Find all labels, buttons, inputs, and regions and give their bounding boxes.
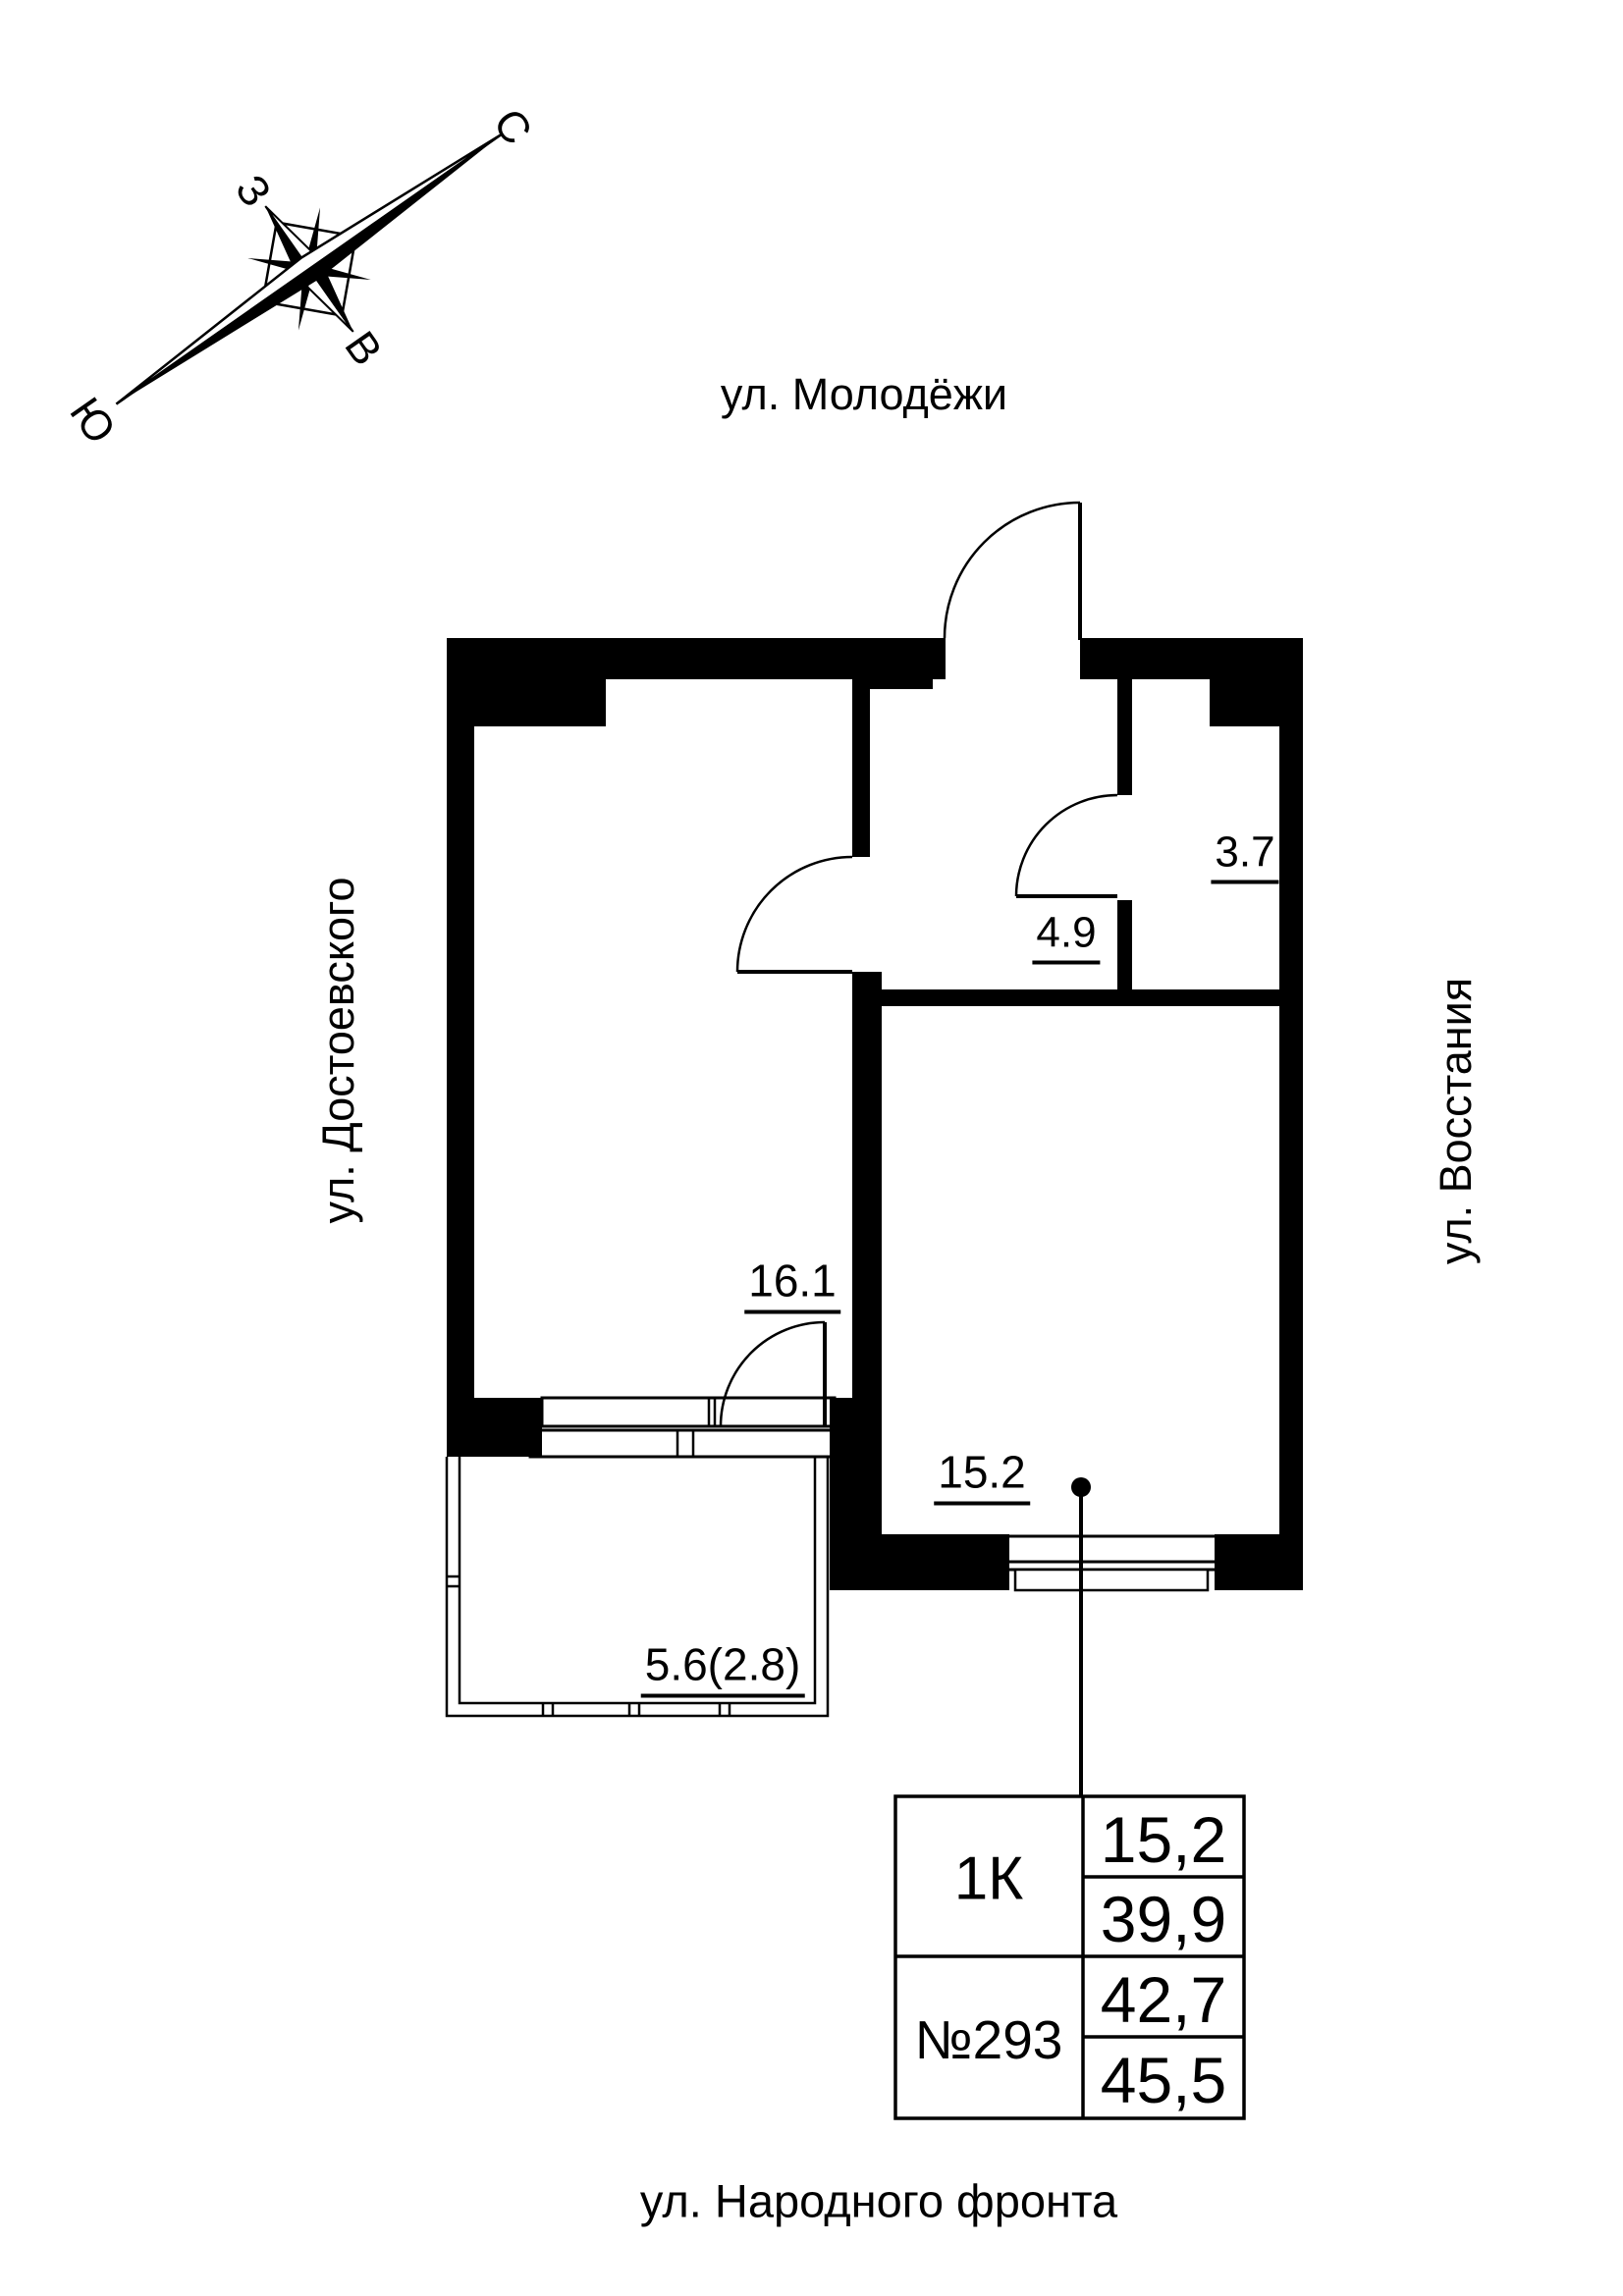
room-door-arc xyxy=(737,857,852,972)
compass-west-label: З xyxy=(226,167,280,216)
wall-right xyxy=(1279,638,1303,1590)
wall-hall-room-upper xyxy=(852,679,870,857)
room-main-window-frame xyxy=(542,1398,835,1426)
compass-needle-dark xyxy=(116,133,510,415)
compass-east-label: В xyxy=(335,323,391,374)
unit-type-label: 1К xyxy=(954,1844,1024,1914)
area-value-total: 39,9 xyxy=(1101,1882,1226,1956)
entrance-door-arc xyxy=(945,503,1080,638)
street-label-left: ул. Достоевского xyxy=(313,877,364,1223)
wall-bathroom-upper xyxy=(1117,672,1132,795)
leader xyxy=(1071,1477,1091,1796)
wall-bottom-right-segment xyxy=(1215,1534,1303,1590)
balcony-area-label: 5.6(2.8) xyxy=(641,1638,805,1698)
room-second-window-sill xyxy=(1015,1570,1208,1590)
compass-north-label: С xyxy=(484,100,541,153)
area-value-living: 15,2 xyxy=(1101,1802,1226,1877)
street-label-bottom: ул. Народного фронта xyxy=(640,2174,1117,2228)
bathroom-door-arc xyxy=(1016,795,1117,896)
wall-hall-room-stub xyxy=(852,679,933,689)
balcony-door-arc xyxy=(721,1322,825,1426)
hallway-area-label: 4.9 xyxy=(1032,909,1100,965)
balcony-top-frame xyxy=(530,1430,837,1457)
wall-bathroom-lower xyxy=(1117,900,1132,1003)
wall-left xyxy=(447,638,474,1398)
compass-rose: С Ю З В xyxy=(10,24,595,525)
compass-needle-light xyxy=(108,123,502,404)
wall-horizontal-mid xyxy=(852,989,1303,1006)
room-main-area-label: 16.1 xyxy=(744,1255,840,1314)
floor-plan-page: С Ю З В xyxy=(0,0,1623,2296)
bathroom-area-label: 3.7 xyxy=(1211,828,1278,884)
wall-pier-bottom-left xyxy=(447,1398,542,1457)
area-value-reduced-balcony: 42,7 xyxy=(1101,1962,1226,2037)
unit-number-label: №293 xyxy=(915,2008,1063,2071)
floor-plan-drawing: С Ю З В xyxy=(0,0,1623,2296)
area-value-full-balcony: 45,5 xyxy=(1101,2043,1226,2117)
compass-south-label: Ю xyxy=(60,389,125,453)
wall-pier-mid xyxy=(830,1398,882,1590)
street-label-right: ул. Восстания xyxy=(1431,978,1482,1264)
room-second-area-label: 15.2 xyxy=(934,1446,1030,1506)
street-label-top: ул. Молодёжи xyxy=(721,369,1007,420)
